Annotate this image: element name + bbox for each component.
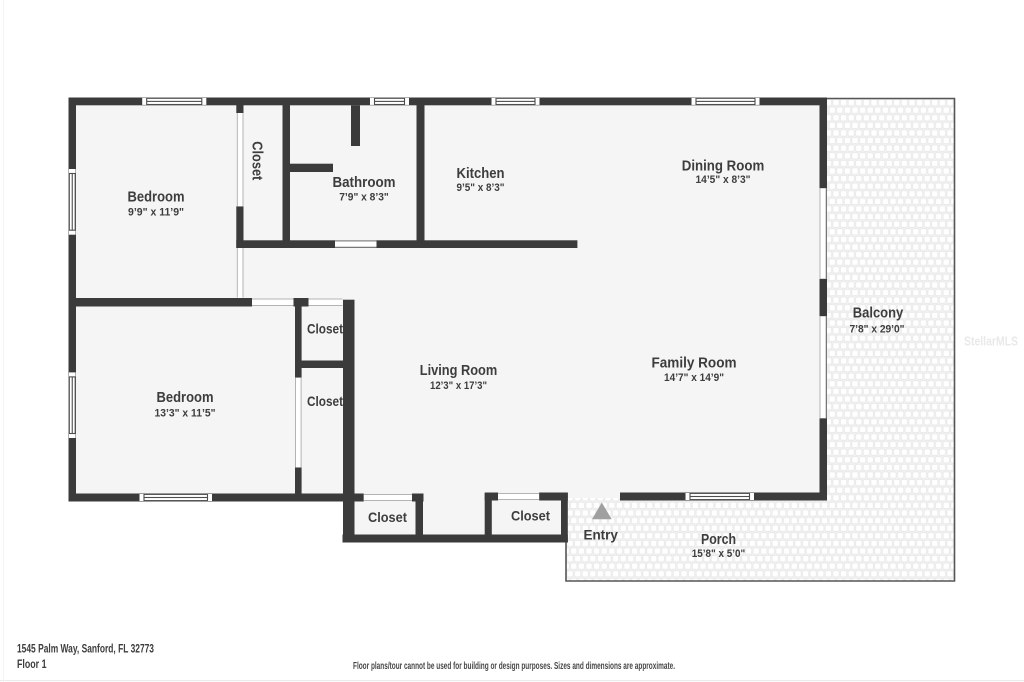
svg-text:Dining Room: Dining Room bbox=[682, 157, 765, 174]
svg-text:Bathroom: Bathroom bbox=[333, 174, 396, 191]
svg-text:1545 Palm Way, Sanford, FL 327: 1545 Palm Way, Sanford, FL 32773 bbox=[17, 643, 154, 655]
svg-text:Kitchen: Kitchen bbox=[457, 165, 505, 182]
svg-text:15’8" x 5’0": 15’8" x 5’0" bbox=[692, 548, 746, 560]
svg-text:Floor plans/tour cannot be use: Floor plans/tour cannot be used for buil… bbox=[353, 661, 675, 672]
svg-text:14’7" x 14’9": 14’7" x 14’9" bbox=[664, 372, 724, 384]
svg-text:Floor 1: Floor 1 bbox=[17, 659, 47, 671]
svg-text:7’9" x 8’3": 7’9" x 8’3" bbox=[339, 191, 389, 203]
svg-text:7’8" x 29’0": 7’8" x 29’0" bbox=[850, 324, 905, 336]
svg-text:Closet: Closet bbox=[368, 510, 407, 525]
svg-text:Porch: Porch bbox=[701, 531, 736, 548]
svg-text:Closet: Closet bbox=[307, 321, 343, 336]
svg-text:Closet: Closet bbox=[511, 508, 550, 523]
svg-text:9’5" x 8’3": 9’5" x 8’3" bbox=[457, 182, 505, 194]
svg-text:13’3" x 11’5": 13’3" x 11’5" bbox=[155, 407, 216, 419]
svg-text:Bedroom: Bedroom bbox=[157, 389, 214, 406]
svg-text:Closet: Closet bbox=[249, 141, 266, 180]
svg-text:Living Room: Living Room bbox=[420, 362, 498, 379]
svg-text:9’9" x 11’9": 9’9" x 11’9" bbox=[128, 206, 184, 218]
svg-text:Entry: Entry bbox=[583, 527, 618, 543]
svg-text:Balcony: Balcony bbox=[853, 304, 904, 321]
svg-text:12’3" x 17’3": 12’3" x 17’3" bbox=[430, 380, 487, 392]
svg-text:Bedroom: Bedroom bbox=[128, 188, 185, 205]
svg-text:14’5" x 8’3": 14’5" x 8’3" bbox=[696, 174, 751, 186]
svg-text:StellarMLS: StellarMLS bbox=[964, 334, 1018, 349]
svg-text:Closet: Closet bbox=[307, 394, 343, 409]
svg-text:Family Room: Family Room bbox=[652, 354, 737, 371]
